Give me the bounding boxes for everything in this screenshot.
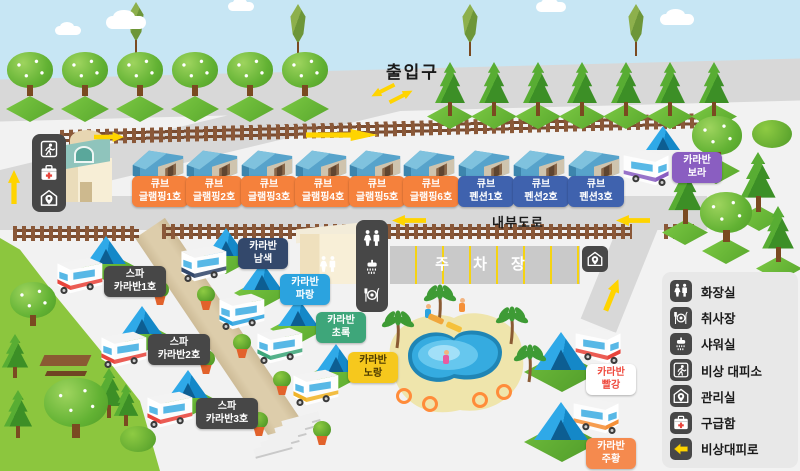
potted-tree	[272, 371, 292, 395]
parking-lot: 주 차 장	[390, 246, 580, 284]
caravan-rv	[284, 366, 344, 409]
caravan-label-purple: 카라반보라	[672, 152, 722, 183]
building-icon-panel	[32, 134, 66, 212]
pine-tree	[697, 62, 731, 116]
caravan-label-blue: 카라반파랑	[280, 274, 330, 305]
legend-item-cooking: 취사장	[670, 307, 790, 329]
facility-icon-panel	[356, 220, 388, 312]
bush	[752, 120, 792, 148]
pine-tree	[653, 62, 687, 116]
round-tree	[282, 52, 328, 96]
shower-icon	[672, 335, 690, 353]
caravan-rv	[48, 254, 108, 297]
shower-icon	[362, 257, 382, 277]
pine-tree	[521, 62, 555, 116]
poplar-tree	[627, 4, 645, 56]
pine-tree	[0, 334, 30, 378]
potted-tree	[232, 334, 252, 358]
palm-tree	[494, 306, 530, 346]
caravan-label-spa-3: 스파카라반3호	[196, 398, 258, 429]
legend-panel: 화장실 취사장 샤워실 비상 대피소 관리실 구급함 비상대피로	[662, 272, 798, 468]
site-label-glamping-6: 큐브글램핑6호	[403, 176, 459, 207]
caravan-rv	[92, 328, 152, 371]
site-label-glamping-1: 큐브글램핑1호	[132, 176, 188, 207]
office-icon	[672, 387, 690, 405]
legend-item-firstaid: 구급함	[670, 412, 790, 434]
person	[458, 298, 466, 314]
restroom-figures-icon	[317, 254, 339, 276]
caravan-rv	[248, 324, 308, 367]
legend-item-shelter: 비상 대피소	[670, 359, 790, 381]
pool-float	[396, 388, 412, 404]
caravan-label-green: 카라반초록	[316, 312, 366, 343]
round-tree	[7, 52, 53, 96]
site-label-glamping-5: 큐브글램핑5호	[349, 176, 405, 207]
poplar-tree	[461, 4, 479, 56]
poplar-tree	[289, 4, 307, 56]
legend-item-shower: 샤워실	[670, 333, 790, 355]
legend-item-office: 관리실	[670, 385, 790, 407]
office-building-window	[74, 146, 94, 163]
cloud	[106, 16, 146, 29]
site-label-pension-1: 큐브펜션1호	[458, 176, 514, 207]
emergency-shelter-icon	[672, 361, 690, 379]
parking-office-badge	[582, 246, 608, 272]
caravan-label-yellow: 카라반노랑	[348, 352, 398, 383]
round-tree	[172, 52, 218, 96]
round-tree	[117, 52, 163, 96]
cooking-icon	[672, 309, 690, 327]
cloud	[55, 26, 81, 35]
emergency-route-icon	[672, 440, 690, 458]
first-aid-icon	[672, 414, 690, 432]
round-tree	[10, 282, 56, 326]
cooking-icon	[362, 285, 382, 305]
legend-item-toilet: 화장실	[670, 280, 790, 302]
pine-tree	[760, 206, 796, 262]
cloud	[660, 14, 694, 25]
caravan-label-spa-1: 스파카라반1호	[104, 266, 166, 297]
pine-tree	[565, 62, 599, 116]
round-tree	[700, 192, 752, 242]
caravan-rv	[172, 242, 232, 285]
potted-tree	[312, 421, 332, 445]
caravan-rv	[138, 388, 198, 431]
person	[442, 350, 450, 366]
pool-float	[472, 392, 488, 408]
internal-road-label: 내부도로	[492, 212, 544, 231]
toilet-icon	[672, 282, 690, 300]
round-tree	[62, 52, 108, 96]
tent	[534, 402, 588, 440]
cloud	[536, 2, 566, 12]
legend-item-route: 비상대피로	[670, 438, 790, 460]
pine-tree	[609, 62, 643, 116]
caravan-label-navy: 카라반남색	[238, 238, 288, 269]
site-label-pension-2: 큐브펜션2호	[513, 176, 569, 207]
first-aid-icon	[39, 163, 59, 183]
office-icon	[586, 250, 604, 268]
cloud	[228, 2, 254, 11]
picnic-table	[38, 350, 94, 380]
parking-label: 주 차 장	[390, 246, 580, 284]
pool-float	[496, 384, 512, 400]
site-label-glamping-4: 큐브글램핑4호	[295, 176, 351, 207]
round-tree	[44, 378, 108, 438]
palm-tree	[512, 344, 548, 384]
office-icon	[39, 188, 59, 208]
caravan-label-red: 카라반빨강	[586, 364, 636, 395]
site-label-glamping-2: 큐브글램핑2호	[186, 176, 242, 207]
bush	[120, 426, 156, 452]
toilet-icon	[361, 228, 383, 250]
site-label-glamping-3: 큐브글램핑3호	[241, 176, 297, 207]
round-tree	[227, 52, 273, 96]
caravan-label-orange: 카라반주황	[586, 438, 636, 469]
pine-tree	[477, 62, 511, 116]
emergency-shelter-icon	[39, 139, 59, 159]
office-building-door	[80, 182, 92, 202]
palm-tree	[380, 310, 416, 350]
campground-map: 주 차 장 출입구 내부도로 에어바운스 풀장 큐브글램핑1	[0, 0, 800, 471]
site-label-pension-3: 큐브펜션3호	[568, 176, 624, 207]
pine-tree	[112, 384, 140, 426]
entrance-label: 출입구	[386, 58, 439, 83]
pool-float	[422, 396, 438, 412]
pine-tree	[2, 390, 34, 438]
caravan-label-spa-2: 스파카라반2호	[148, 334, 210, 365]
